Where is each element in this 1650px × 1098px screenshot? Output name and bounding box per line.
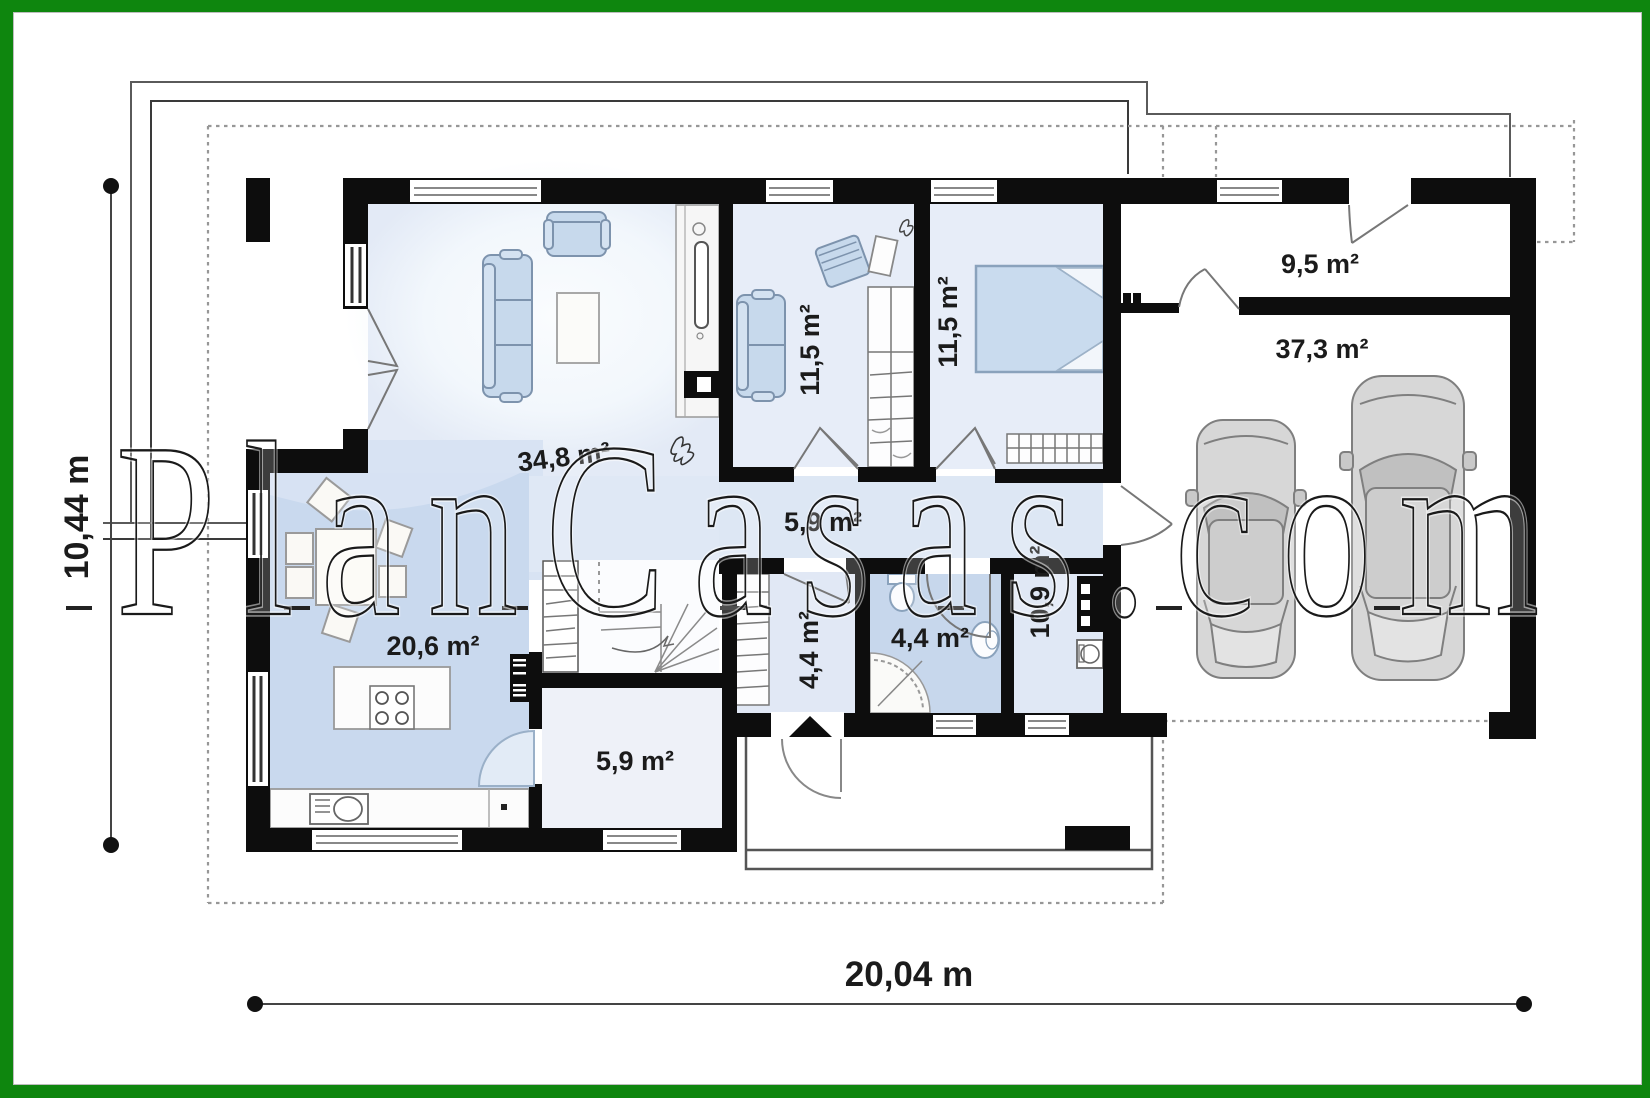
svg-text:5,9 m²: 5,9 m² xyxy=(596,746,674,776)
svg-text:11,5 m²: 11,5 m² xyxy=(795,304,825,396)
svg-text:11,5 m²: 11,5 m² xyxy=(933,276,963,368)
svg-text:10,44 m: 10,44 m xyxy=(58,455,96,580)
svg-text:PlanCasas.com: PlanCasas.com xyxy=(116,392,1567,669)
svg-text:20,04 m: 20,04 m xyxy=(845,955,973,994)
svg-text:37,3 m²: 37,3 m² xyxy=(1275,334,1368,364)
svg-text:9,5 m²: 9,5 m² xyxy=(1281,249,1359,279)
